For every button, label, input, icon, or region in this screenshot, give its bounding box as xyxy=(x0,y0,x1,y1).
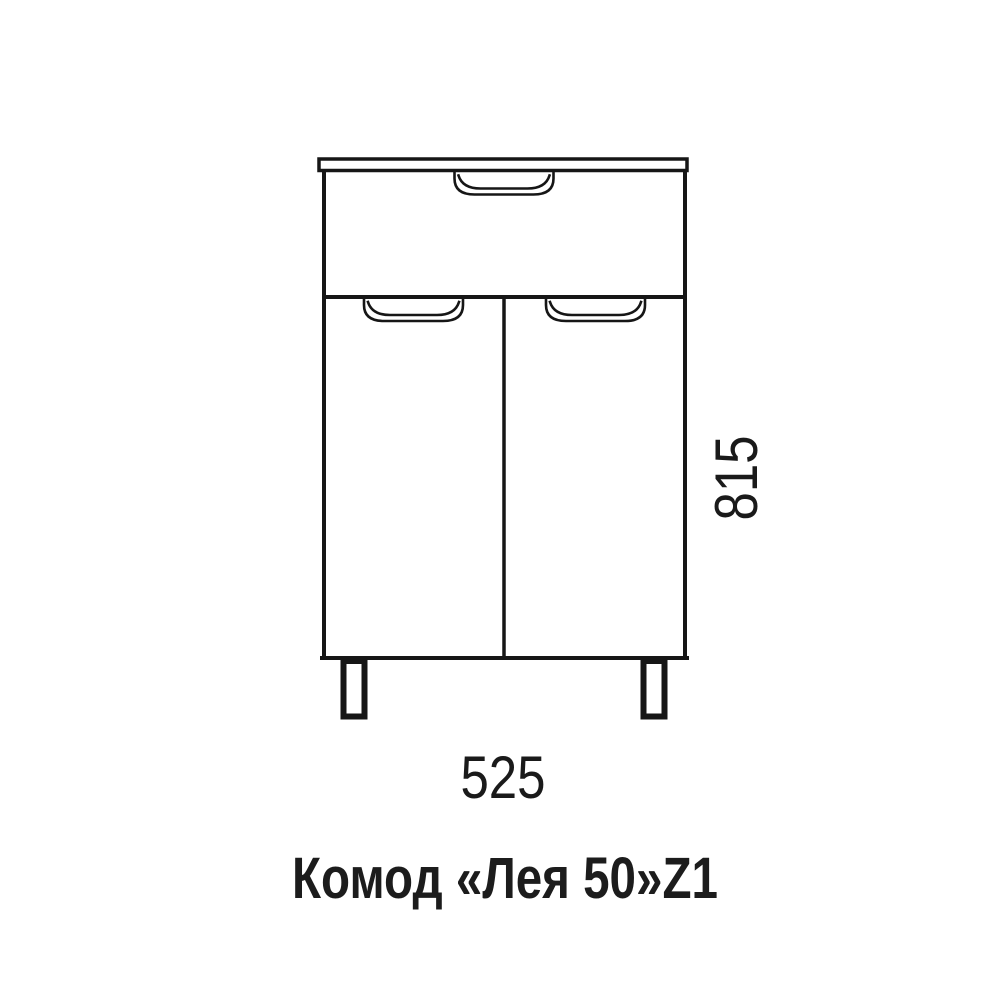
diagram-canvas: 525 815 Комод «Лея 50»Z1 xyxy=(0,0,1000,1000)
height-dimension-label: 815 xyxy=(707,435,767,520)
drawer-handle-inner xyxy=(459,176,550,189)
drawer-handle-outer xyxy=(455,173,554,195)
countertop xyxy=(319,159,687,171)
right-door-handle-outer xyxy=(546,299,645,321)
right-door-handle-inner xyxy=(550,302,641,315)
drawer-handle xyxy=(455,173,554,195)
width-dimension-label: 525 xyxy=(376,748,631,808)
left-leg xyxy=(344,661,365,717)
left-door-handle-outer xyxy=(364,299,463,321)
right-door-handle xyxy=(546,299,645,321)
left-door-handle-inner xyxy=(368,302,459,315)
product-title: Комод «Лея 50»Z1 xyxy=(218,846,792,913)
left-door-handle xyxy=(364,299,463,321)
right-leg xyxy=(644,661,665,717)
